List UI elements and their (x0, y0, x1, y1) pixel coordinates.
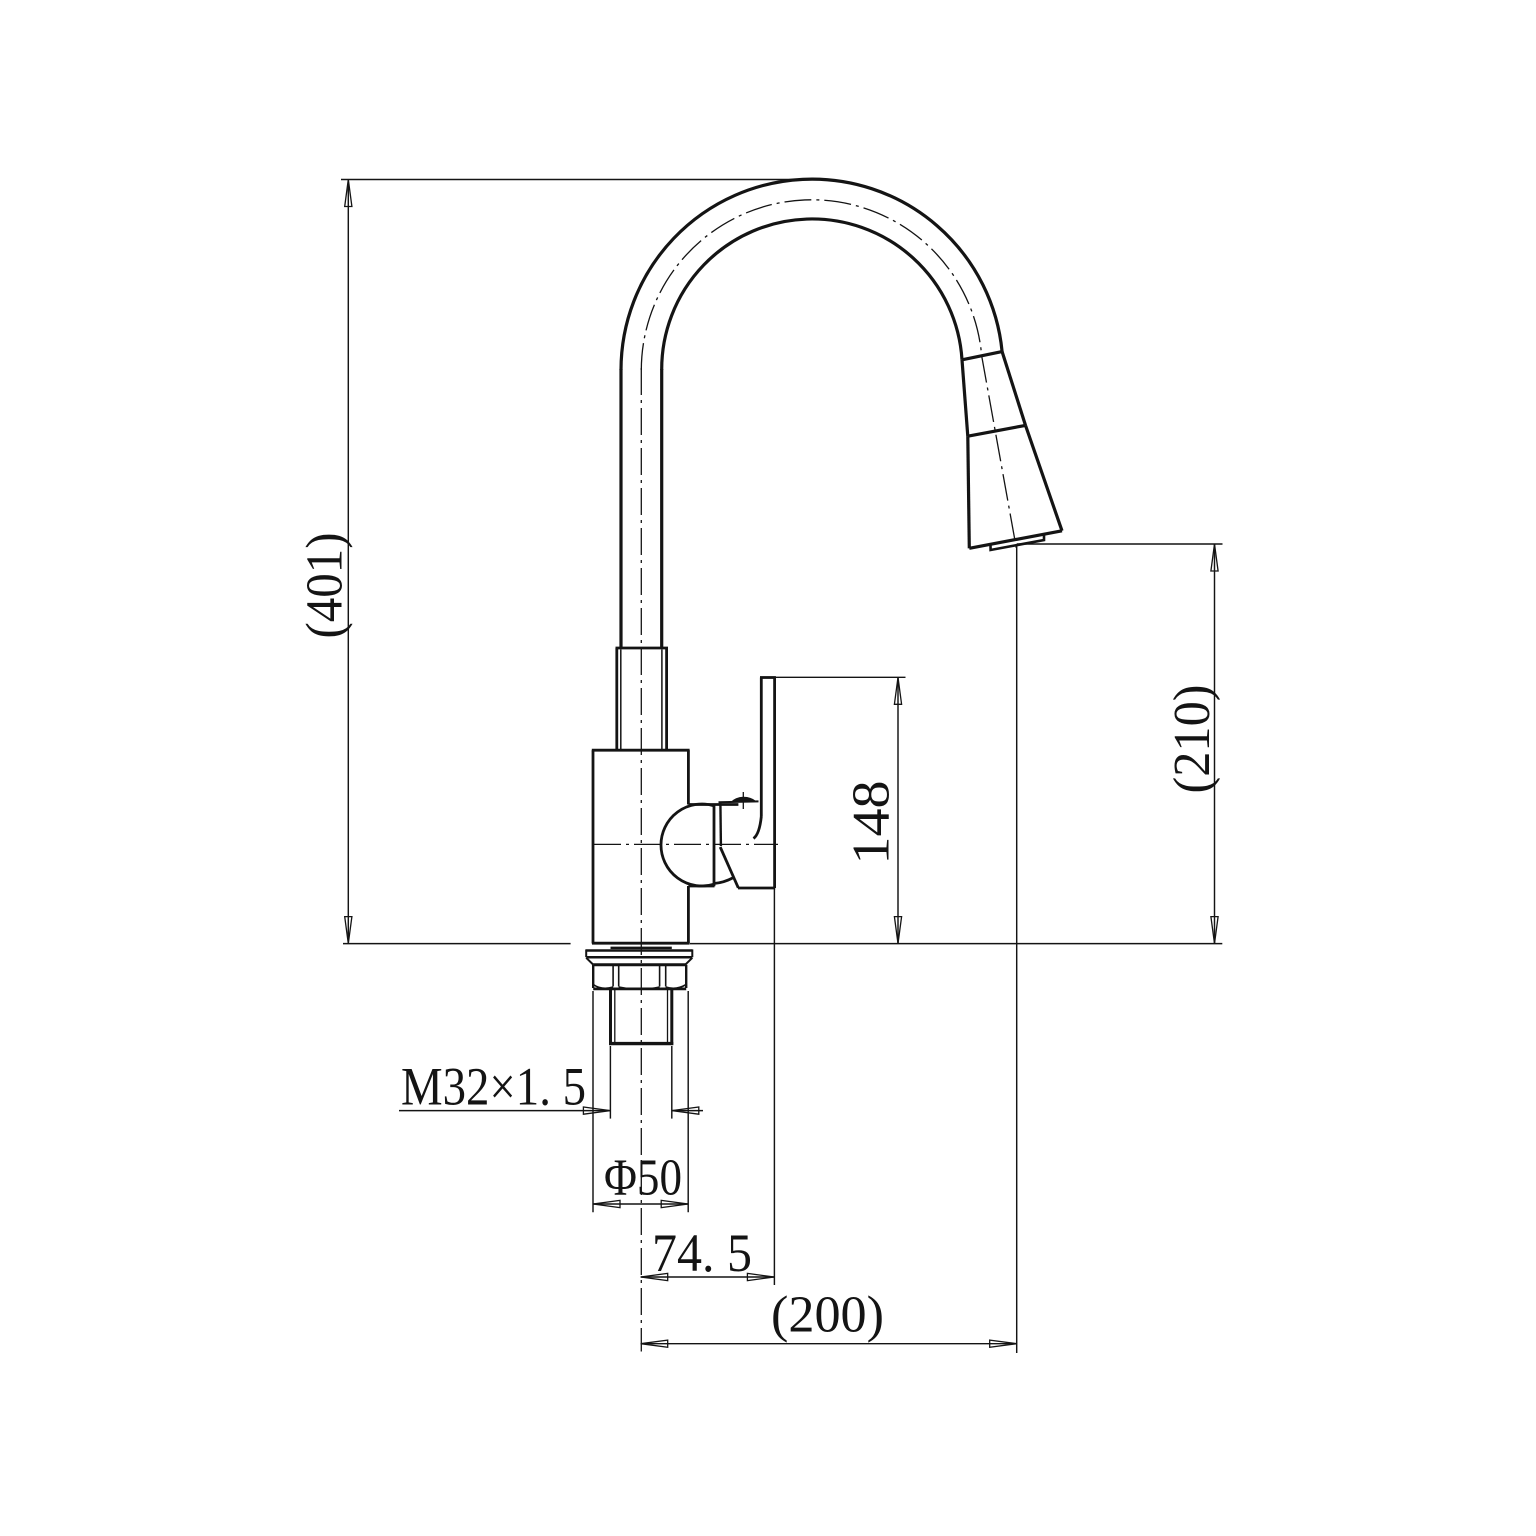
svg-text:M32×1. 5: M32×1. 5 (401, 1057, 586, 1117)
svg-text:74. 5: 74. 5 (652, 1223, 752, 1283)
svg-text:(210): (210) (1164, 685, 1221, 794)
svg-text:(200): (200) (771, 1287, 884, 1344)
svg-text:(401): (401) (297, 533, 354, 639)
svg-text:Φ50: Φ50 (604, 1150, 682, 1207)
svg-text:148: 148 (843, 781, 901, 865)
